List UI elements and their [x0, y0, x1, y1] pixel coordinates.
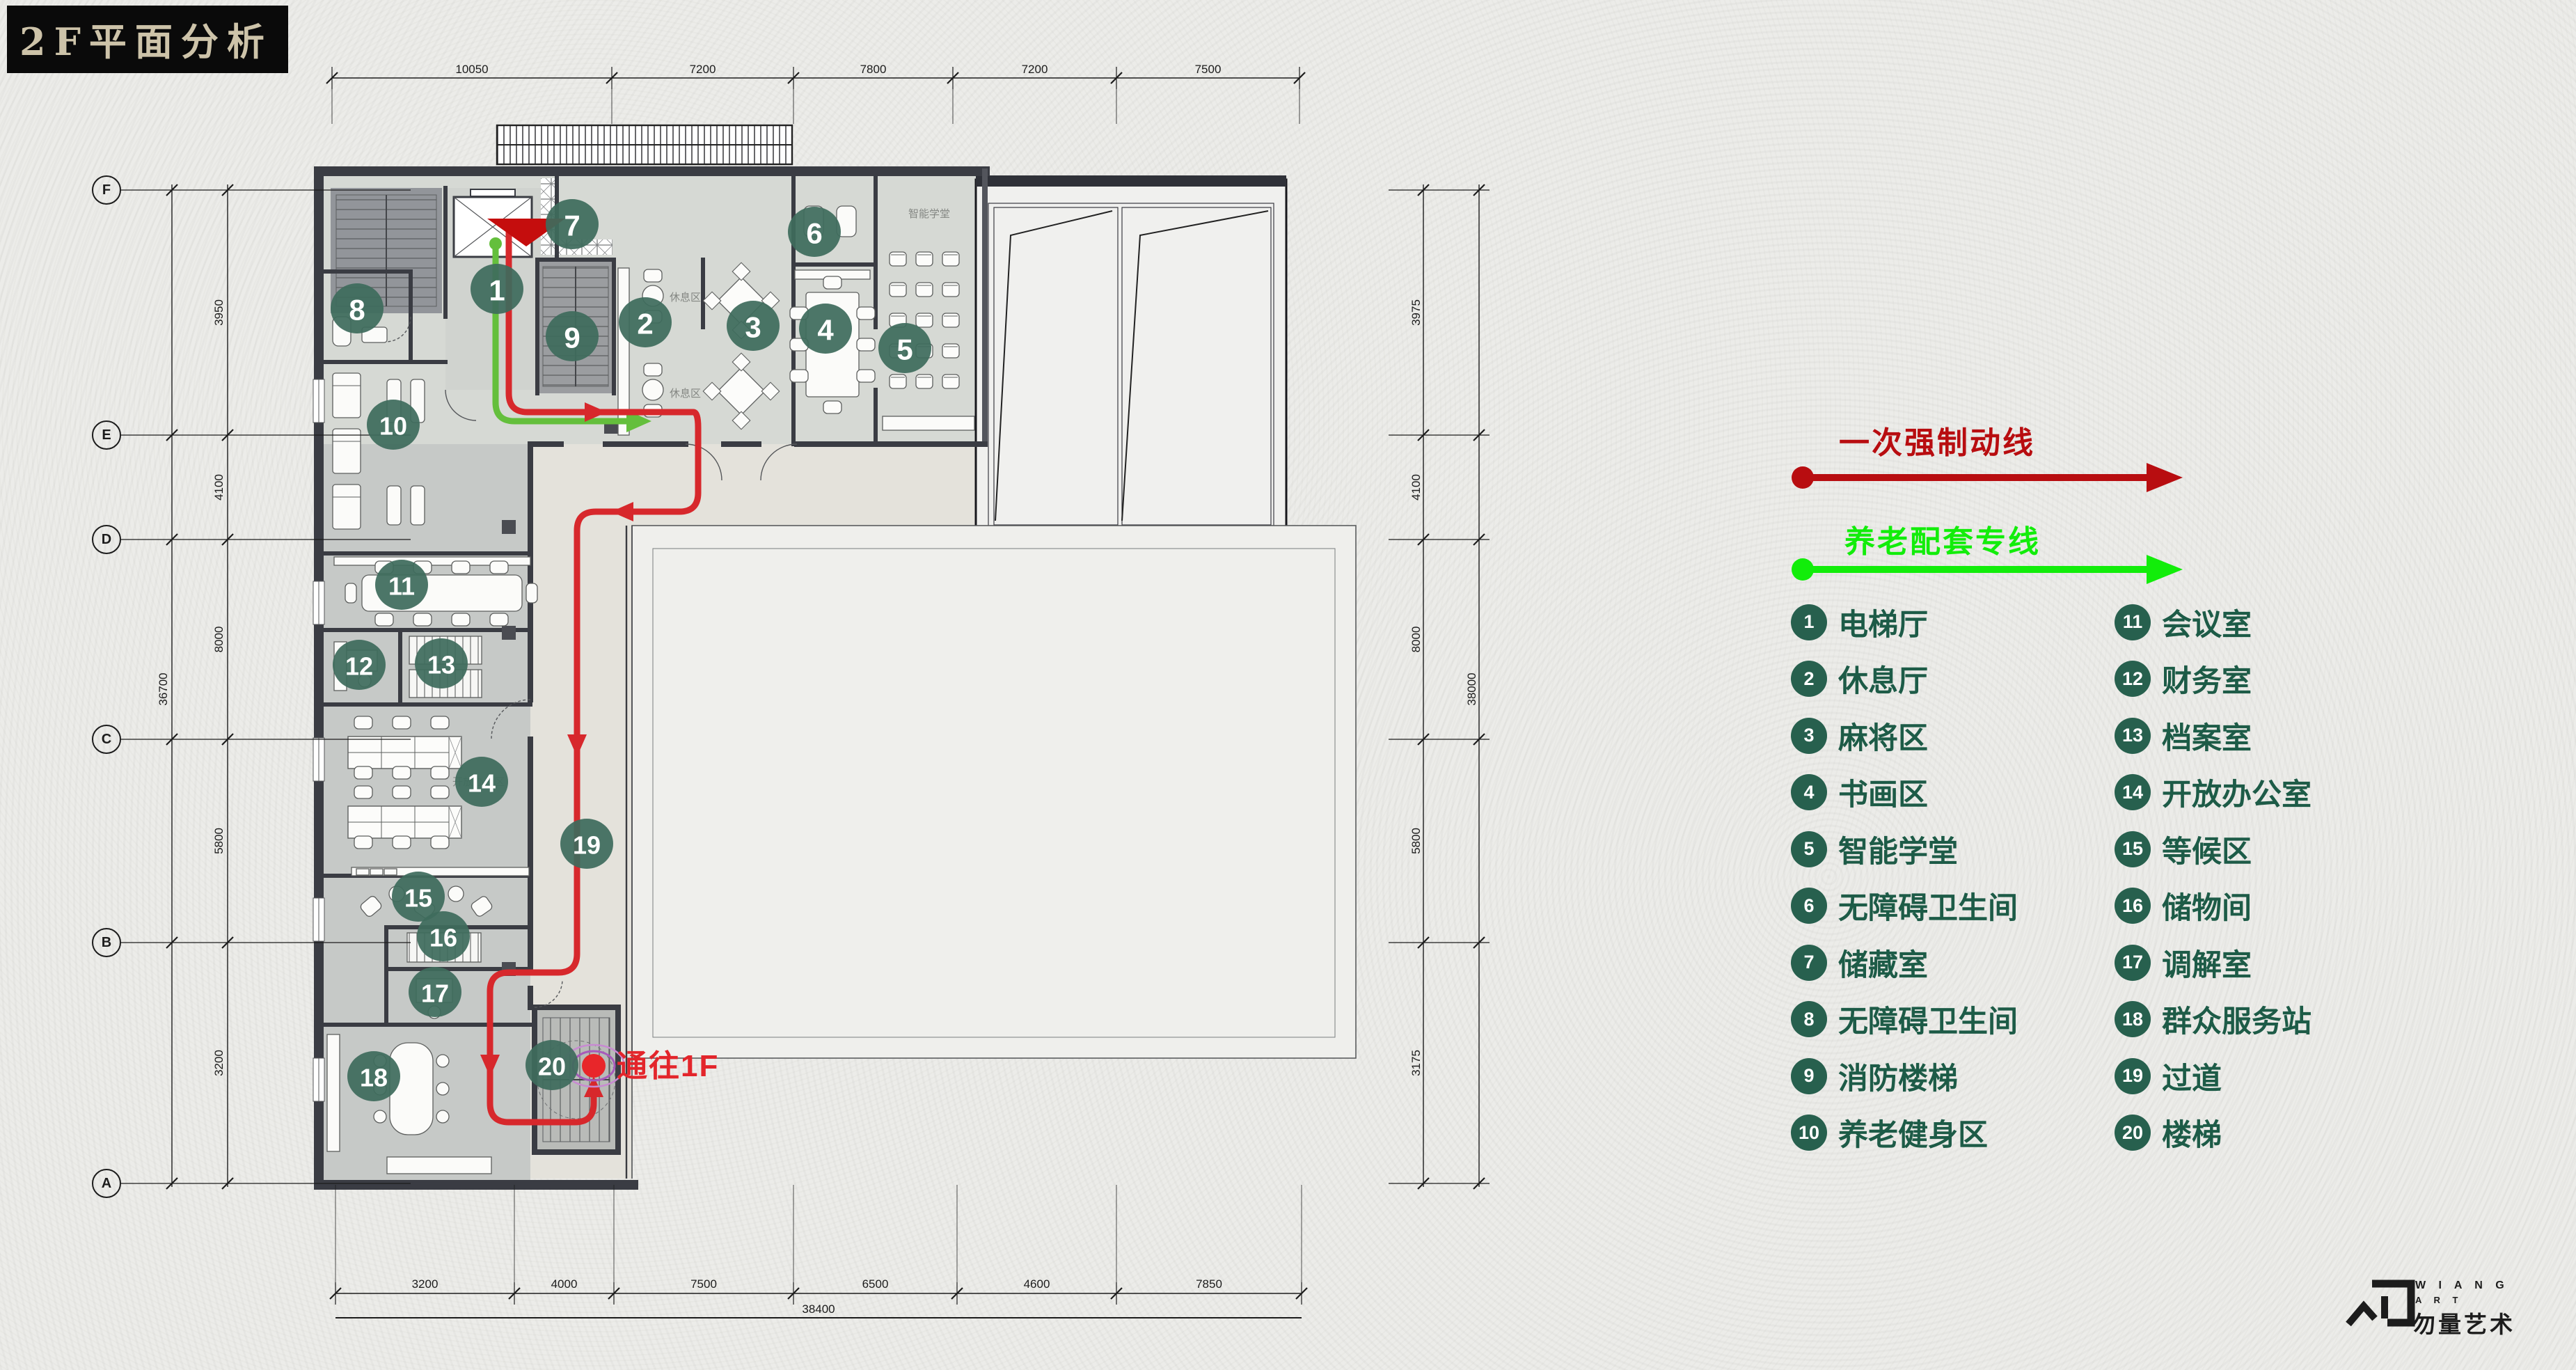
- plan-badge-5: 5: [878, 323, 931, 373]
- plan-badge-12: 12: [333, 640, 386, 690]
- plan-room-label: 休息区: [670, 388, 701, 400]
- legend-room-label: 智能学堂: [1838, 828, 1958, 871]
- svg-text:D: D: [102, 532, 111, 547]
- svg-text:C: C: [102, 732, 111, 747]
- svg-text:3200: 3200: [412, 1277, 438, 1291]
- legend-room-9: 9消防楼梯: [1791, 1048, 2018, 1105]
- svg-text:4100: 4100: [1409, 474, 1423, 501]
- legend-room-number: 1: [1791, 604, 1827, 640]
- legend-room-number: 3: [1791, 718, 1827, 754]
- svg-text:7500: 7500: [1195, 63, 1222, 76]
- svg-text:6: 6: [806, 217, 822, 250]
- plan-room-label: 智能学堂: [908, 207, 950, 220]
- legend-room-number: 9: [1791, 1058, 1827, 1094]
- svg-text:4100: 4100: [212, 474, 226, 501]
- legend-room-15: 15等候区: [2115, 821, 2312, 878]
- svg-text:5: 5: [896, 333, 912, 366]
- legend-room-label: 群众服务站: [2162, 998, 2312, 1041]
- route-red-arrow-icon: [1786, 461, 2186, 494]
- svg-text:E: E: [102, 427, 111, 443]
- legend-room-4: 4书画区: [1791, 764, 2018, 821]
- legend-room-label: 等候区: [2162, 828, 2252, 871]
- svg-text:7800: 7800: [860, 63, 887, 76]
- svg-text:3200: 3200: [212, 1050, 226, 1076]
- svg-text:15: 15: [404, 884, 432, 913]
- plan-badge-18: 18: [347, 1051, 400, 1101]
- route-green-arrow-icon: [1786, 553, 2186, 586]
- legend-room-number: 2: [1791, 661, 1827, 697]
- plan-badge-19: 19: [560, 819, 613, 869]
- plan-badge-3: 3: [727, 301, 780, 351]
- svg-text:7500: 7500: [690, 1277, 717, 1291]
- legend-room-label: 调解室: [2162, 941, 2252, 984]
- legend-room-label: 过道: [2162, 1055, 2222, 1098]
- legend-room-label: 楼梯: [2162, 1111, 2222, 1154]
- svg-text:8000: 8000: [1409, 627, 1423, 653]
- svg-text:9: 9: [564, 322, 580, 354]
- svg-text:6500: 6500: [862, 1277, 889, 1291]
- legend-room-column-2: 11会议室12财务室13档案室14开放办公室15等候区16储物间17调解室18群…: [2115, 594, 2312, 1161]
- legend-room-number: 8: [1791, 1001, 1827, 1037]
- route-red-label: 一次强制动线: [1839, 418, 2035, 462]
- svg-text:B: B: [102, 935, 111, 950]
- svg-text:38000: 38000: [1465, 672, 1478, 705]
- legend-room-number: 20: [2115, 1115, 2151, 1151]
- legend-room-20: 20楼梯: [2115, 1105, 2312, 1162]
- legend-room-label: 书画区: [1838, 771, 1928, 814]
- svg-text:7200: 7200: [690, 63, 716, 76]
- legend-room-label: 消防楼梯: [1838, 1055, 1958, 1098]
- plan-badge-1: 1: [471, 264, 523, 314]
- plan-room-label: 休息区: [670, 292, 701, 304]
- legend-room-5: 5智能学堂: [1791, 821, 2018, 878]
- legend-room-number: 13: [2115, 718, 2151, 754]
- plan-badge-6: 6: [788, 207, 841, 257]
- svg-text:4600: 4600: [1024, 1277, 1050, 1291]
- svg-text:5800: 5800: [212, 828, 226, 854]
- legend-room-label: 休息厅: [1838, 657, 1928, 700]
- legend-room-16: 16储物间: [2115, 878, 2312, 935]
- legend-room-column-1: 1电梯厅2休息厅3麻将区4书画区5智能学堂6无障碍卫生间7储藏室8无障碍卫生间9…: [1791, 594, 2018, 1161]
- legend-room-label: 储物间: [2162, 884, 2252, 927]
- svg-text:8: 8: [349, 294, 365, 326]
- svg-text:20: 20: [538, 1053, 566, 1081]
- svg-text:3175: 3175: [1409, 1050, 1423, 1076]
- plan-badge-17: 17: [409, 967, 461, 1017]
- svg-text:F: F: [102, 182, 111, 198]
- legend-room-label: 开放办公室: [2162, 771, 2312, 814]
- svg-text:10: 10: [379, 412, 407, 441]
- legend-room-number: 11: [2115, 604, 2151, 640]
- plan-badge-20: 20: [526, 1040, 578, 1090]
- legend-room-3: 3麻将区: [1791, 707, 2018, 764]
- legend-room-label: 档案室: [2162, 714, 2252, 757]
- legend-room-number: 17: [2115, 945, 2151, 981]
- svg-text:5800: 5800: [1409, 828, 1423, 854]
- plan-badge-10: 10: [367, 400, 420, 450]
- studio-logo: W I A N G A R T 勿量艺术: [2330, 1275, 2560, 1345]
- legend-room-13: 13档案室: [2115, 707, 2312, 764]
- legend-room-label: 财务室: [2162, 657, 2252, 700]
- svg-text:1: 1: [489, 274, 505, 307]
- svg-text:10050: 10050: [455, 63, 488, 76]
- svg-text:11: 11: [388, 572, 415, 601]
- plan-badge-14: 14: [455, 757, 508, 807]
- logo-text-cn: 勿量艺术: [2412, 1306, 2515, 1339]
- legend-room-11: 11会议室: [2115, 594, 2312, 651]
- svg-text:3950: 3950: [212, 299, 226, 326]
- green-start-dot: [489, 237, 502, 250]
- plan-badge-13: 13: [415, 638, 468, 688]
- legend-room-number: 6: [1791, 888, 1827, 924]
- plan-badge-11: 11: [375, 560, 428, 610]
- legend-room-7: 7储藏室: [1791, 934, 2018, 991]
- legend-room-19: 19过道: [2115, 1048, 2312, 1105]
- legend-room-number: 7: [1791, 945, 1827, 981]
- plan-badge-4: 4: [799, 304, 852, 354]
- legend-room-label: 养老健身区: [1838, 1111, 1988, 1154]
- svg-text:3: 3: [745, 311, 761, 344]
- svg-text:3975: 3975: [1409, 299, 1423, 326]
- svg-text:7200: 7200: [1022, 63, 1048, 76]
- svg-text:4000: 4000: [551, 1277, 578, 1291]
- svg-text:2: 2: [637, 308, 653, 340]
- legend-room-12: 12财务室: [2115, 651, 2312, 708]
- legend-room-number: 18: [2115, 1001, 2151, 1037]
- legend-room-17: 17调解室: [2115, 934, 2312, 991]
- svg-text:7850: 7850: [1196, 1277, 1222, 1291]
- legend-room-10: 10养老健身区: [1791, 1105, 2018, 1162]
- legend-room-label: 会议室: [2162, 601, 2252, 644]
- legend-room-number: 19: [2115, 1058, 2151, 1094]
- svg-text:14: 14: [468, 769, 496, 798]
- legend-room-number: 5: [1791, 831, 1827, 867]
- logo-text-en2: A R T: [2415, 1295, 2463, 1305]
- legend-room-label: 麻将区: [1838, 714, 1928, 757]
- svg-text:8000: 8000: [212, 627, 226, 653]
- svg-text:36700: 36700: [157, 672, 170, 705]
- plan-badge-7: 7: [546, 199, 599, 249]
- upper-terrace: [976, 175, 1286, 542]
- svg-text:7: 7: [564, 210, 580, 242]
- legend-room-label: 电梯厅: [1838, 601, 1928, 644]
- legend-room-number: 4: [1791, 774, 1827, 810]
- legend-room-number: 12: [2115, 661, 2151, 697]
- legend-room-number: 14: [2115, 774, 2151, 810]
- plan-badge-8: 8: [331, 283, 384, 333]
- lower-terrace: [626, 526, 1356, 1179]
- legend-room-number: 15: [2115, 831, 2151, 867]
- legend-room-number: 10: [1791, 1115, 1827, 1151]
- legend-room-label: 无障碍卫生间: [1838, 884, 2018, 927]
- svg-text:4: 4: [817, 314, 834, 347]
- legend-room-14: 14开放办公室: [2115, 764, 2312, 821]
- svg-text:16: 16: [429, 924, 457, 952]
- legend-room-number: 16: [2115, 888, 2151, 924]
- svg-text:18: 18: [360, 1064, 388, 1092]
- legend-room-label: 无障碍卫生间: [1838, 998, 2018, 1041]
- svg-text:13: 13: [427, 651, 455, 679]
- legend-room-6: 6无障碍卫生间: [1791, 878, 2018, 935]
- svg-text:17: 17: [421, 979, 449, 1008]
- legend-room-8: 8无障碍卫生间: [1791, 991, 2018, 1048]
- legend-room-1: 1电梯厅: [1791, 594, 2018, 651]
- page-title: 2F平面分析: [7, 6, 288, 73]
- svg-text:12: 12: [345, 652, 373, 681]
- svg-text:38400: 38400: [802, 1302, 835, 1316]
- plan-badge-16: 16: [417, 911, 470, 961]
- balcony-louvers: [497, 125, 792, 164]
- svg-text:19: 19: [573, 831, 601, 860]
- logo-text-en1: W I A N G: [2415, 1280, 2509, 1292]
- plan-badge-2: 2: [619, 297, 672, 347]
- legend-room-2: 2休息厅: [1791, 651, 2018, 708]
- legend-room-label: 储藏室: [1838, 941, 1928, 984]
- logo-mark-icon: [2344, 1275, 2421, 1345]
- plan-badge-9: 9: [546, 311, 599, 361]
- to-1f-label: 通往1F: [617, 1049, 719, 1083]
- svg-text:A: A: [102, 1176, 111, 1191]
- legend-room-18: 18群众服务站: [2115, 991, 2312, 1048]
